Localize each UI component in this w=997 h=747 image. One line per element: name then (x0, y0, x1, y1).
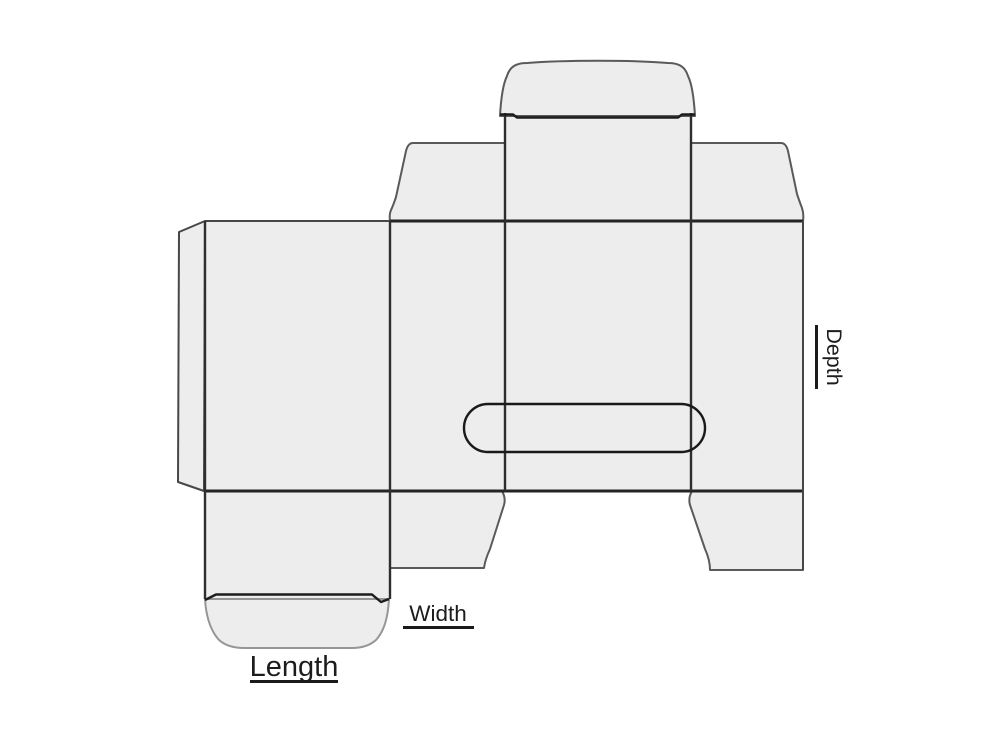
bottom-tuck-flap (205, 599, 389, 648)
dieline-canvas: Length Width Depth (0, 0, 997, 747)
glue-flap (178, 221, 205, 491)
bottom-closure-panel (205, 491, 390, 599)
top-closure-panel (505, 113, 691, 221)
back-panel (205, 221, 390, 491)
dieline-diagram: Length Width Depth (0, 0, 997, 747)
depth-label: Depth (822, 328, 846, 385)
bottom-dust-flap-right (689, 491, 803, 570)
top-dust-flap-left (390, 143, 505, 221)
front-panel (505, 221, 691, 491)
top-dust-flap-right (691, 143, 803, 221)
length-label: Length (250, 651, 339, 683)
side-panel-left (390, 221, 505, 491)
side-panel-right (691, 221, 803, 491)
bottom-dust-flap-left (390, 491, 505, 568)
top-tuck-flap (500, 61, 695, 116)
width-label: Width (409, 601, 467, 626)
